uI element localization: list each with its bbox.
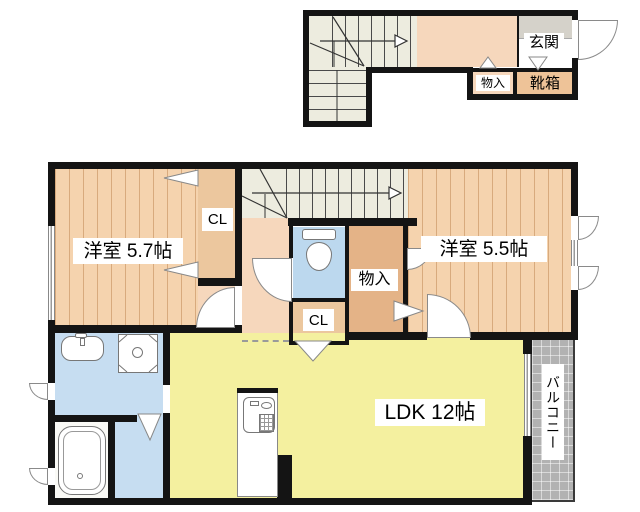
wall xyxy=(289,341,349,345)
bedroom-5-7-label-text: 洋室 5.7帖 xyxy=(84,242,173,261)
bathtub-drain-icon xyxy=(77,473,83,479)
wash-basin-faucet-icon xyxy=(80,338,85,346)
balcony-label: バルコニー xyxy=(542,364,564,460)
wall xyxy=(303,10,578,16)
bathroom-strip-floor xyxy=(115,415,163,498)
wall xyxy=(473,68,572,72)
wall xyxy=(572,58,578,94)
wall xyxy=(48,162,578,169)
wall xyxy=(235,169,242,286)
stairs-2f-treads xyxy=(286,169,417,218)
bedroom-5-5-label-text: 洋室 5.5帖 xyxy=(440,240,529,259)
wall xyxy=(571,290,578,338)
casement-window-right-upper xyxy=(578,216,599,240)
closet-center-label: CL xyxy=(303,309,334,331)
wall xyxy=(289,300,293,345)
wall xyxy=(108,422,115,498)
ldk-label-text: LDK 12帖 xyxy=(384,402,475,423)
storage-2f-label-text: 物入 xyxy=(358,272,390,288)
casement-window-washroom xyxy=(29,383,48,400)
wall xyxy=(163,333,170,385)
wall xyxy=(366,67,473,73)
window-bedroom-5-5 xyxy=(571,240,578,266)
floor-plan: 玄関 物入 靴箱 xyxy=(0,0,640,512)
wall xyxy=(163,413,170,498)
balcony-label-text: バルコニー xyxy=(546,375,560,450)
wall xyxy=(48,400,55,468)
wall xyxy=(48,485,55,505)
casement-window-right-lower xyxy=(578,266,599,290)
wall xyxy=(277,455,292,498)
wall xyxy=(288,218,417,226)
kitchen-counter-back-edge xyxy=(237,388,278,393)
stairs-1f-treads-lower xyxy=(309,70,366,121)
wall xyxy=(345,218,349,345)
wall xyxy=(289,298,349,302)
bedroom-5-7-label: 洋室 5.7帖 xyxy=(73,238,183,264)
closet-left-label-text: CL xyxy=(208,212,227,227)
wall xyxy=(571,162,578,216)
hall-ldk-open-boundary xyxy=(242,340,289,342)
wall xyxy=(517,16,519,67)
wall xyxy=(403,332,427,340)
wall xyxy=(48,162,55,226)
storage-1f-label: 物入 xyxy=(476,75,510,91)
casement-window-bathroom xyxy=(29,468,48,485)
shoe-box-label-text: 靴箱 xyxy=(530,76,560,91)
wall xyxy=(345,332,407,340)
kitchen-drainer-icon xyxy=(259,414,274,432)
wall xyxy=(523,340,532,354)
entrance-label-text: 玄関 xyxy=(529,35,559,50)
wall xyxy=(403,218,408,332)
kitchen-faucet-knob-icon xyxy=(261,402,272,409)
stairs-1f-treads-upper xyxy=(332,16,417,67)
window-ldk-balcony xyxy=(524,354,531,436)
entrance-label: 玄関 xyxy=(524,33,564,51)
wall xyxy=(572,10,578,20)
wall xyxy=(467,94,578,100)
window-bedroom-5-7 xyxy=(48,226,55,320)
wall xyxy=(523,436,532,498)
hallway-1f xyxy=(417,16,517,67)
closet-left-label: CL xyxy=(202,208,233,231)
toilet-tank-icon xyxy=(302,229,336,240)
wall xyxy=(303,10,309,127)
wall xyxy=(289,226,293,258)
ldk-label: LDK 12帖 xyxy=(375,399,485,426)
storage-1f-label-text: 物入 xyxy=(481,77,505,89)
bathtub-inner-icon xyxy=(63,431,101,490)
wall xyxy=(470,332,578,340)
storage-2f-label: 物入 xyxy=(351,269,398,291)
kitchen-faucet-icon xyxy=(250,401,259,406)
washer-drain-icon xyxy=(132,347,143,358)
shoe-box-label: 靴箱 xyxy=(522,74,568,92)
wall xyxy=(198,278,235,286)
entrance-door-arc xyxy=(578,20,618,60)
bedroom-5-5-label: 洋室 5.5帖 xyxy=(421,236,547,262)
wall xyxy=(366,67,372,127)
wall xyxy=(48,498,532,505)
wall xyxy=(48,415,137,422)
wall xyxy=(303,121,372,127)
closet-center-label-text: CL xyxy=(309,313,328,328)
